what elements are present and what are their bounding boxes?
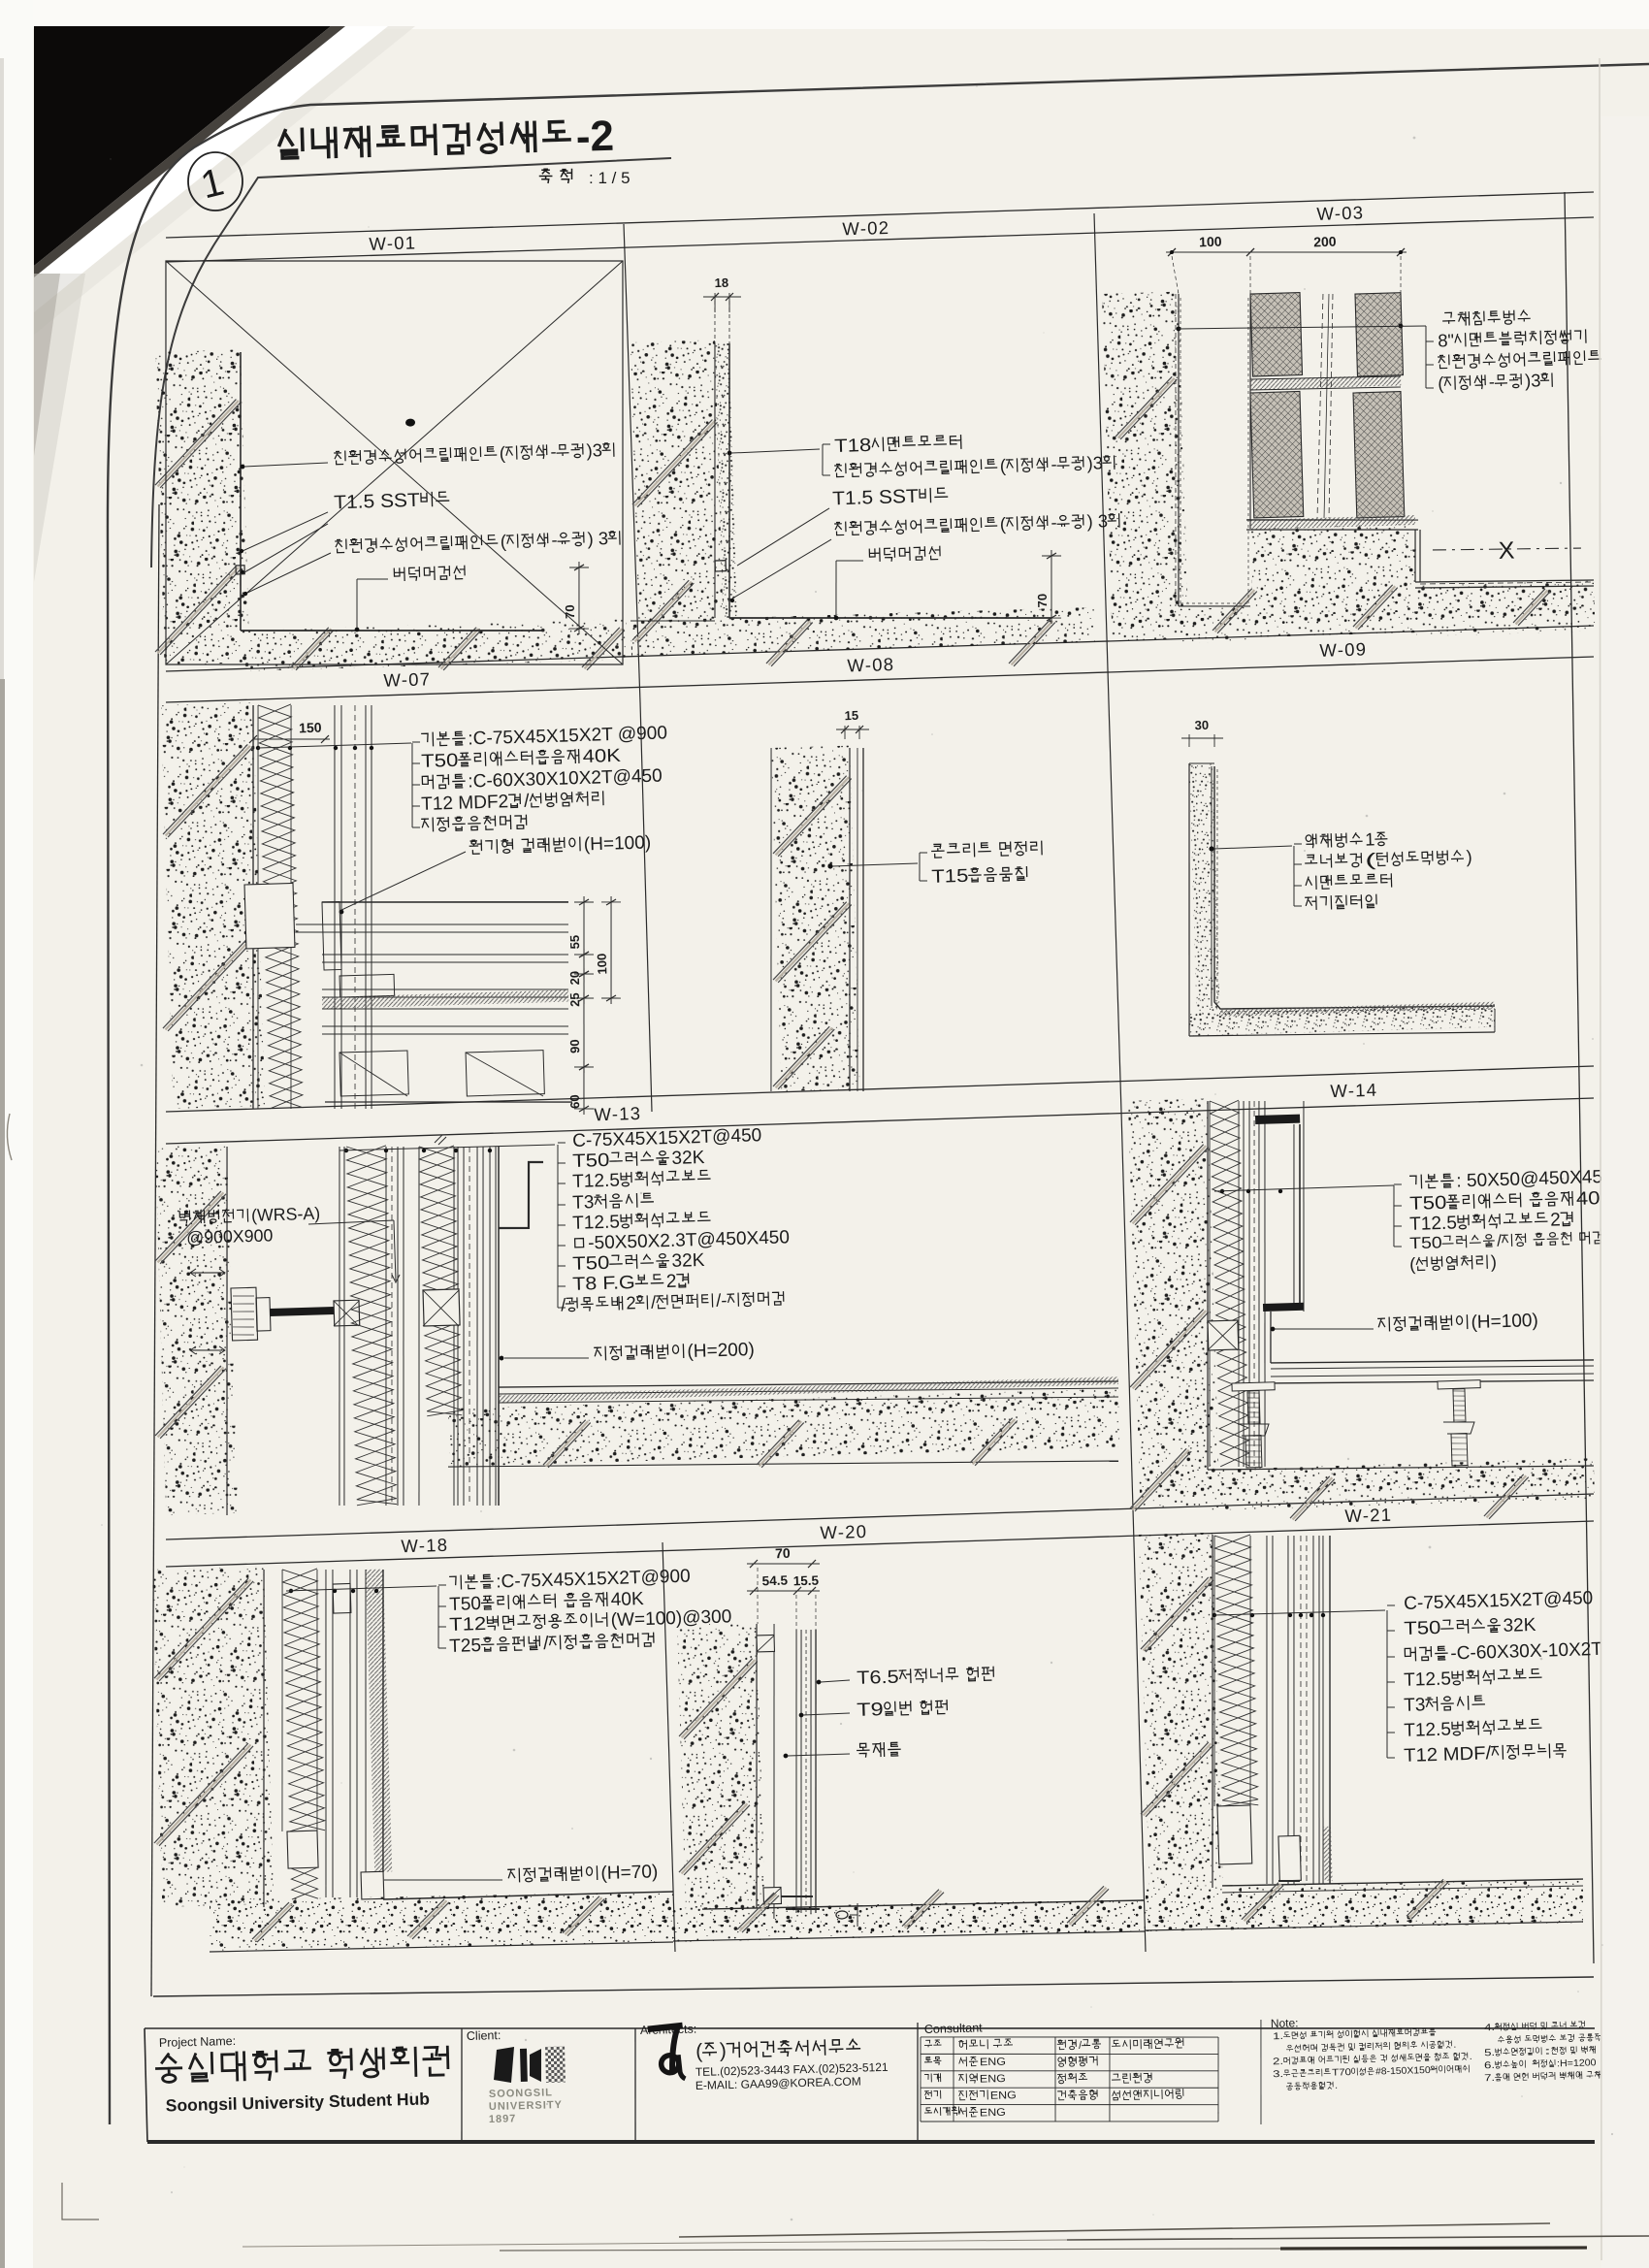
svg-text:(WRS-A): (WRS-A) <box>251 1204 321 1225</box>
svg-text:54.5: 54.5 <box>761 1573 788 1589</box>
svg-text:)3: )3 <box>586 439 602 460</box>
svg-text:W-09: W-09 <box>1319 638 1367 660</box>
svg-text:(H=100): (H=100) <box>584 832 652 855</box>
svg-text:55: 55 <box>567 935 582 950</box>
svg-text:T3: T3 <box>572 1192 595 1214</box>
svg-text:T12 MDF2: T12 MDF2 <box>421 792 509 815</box>
svg-text:W-21: W-21 <box>1344 1505 1392 1526</box>
svg-text:-: - <box>550 441 557 462</box>
svg-text:T8 F.G: T8 F.G <box>572 1273 635 1295</box>
svg-text:200: 200 <box>1313 234 1337 250</box>
svg-text:T6.5: T6.5 <box>857 1668 899 1689</box>
svg-text:.: . <box>1470 2052 1472 2062</box>
svg-text:6.: 6. <box>1484 2060 1495 2071</box>
svg-text:): ) <box>1466 846 1472 866</box>
svg-text::H=1200: :H=1200 <box>1557 2057 1597 2069</box>
svg-text:T50: T50 <box>1404 1618 1441 1639</box>
svg-text:-: - <box>1051 454 1057 474</box>
svg-text:Consultant: Consultant <box>924 2021 984 2036</box>
svg-text:30: 30 <box>1194 718 1209 732</box>
svg-text:70: 70 <box>563 604 577 619</box>
svg-text:.: . <box>1453 2040 1456 2051</box>
svg-text:15.5: 15.5 <box>792 1573 819 1589</box>
svg-text:70: 70 <box>1035 594 1050 608</box>
svg-text:90: 90 <box>567 1039 582 1053</box>
svg-text:7.: 7. <box>1484 2073 1495 2084</box>
svg-text:(H=100): (H=100) <box>1471 1311 1538 1333</box>
svg-text:32K: 32K <box>1503 1615 1536 1636</box>
svg-text:1897: 1897 <box>489 2113 517 2125</box>
svg-text:ENG: ENG <box>980 2057 1006 2069</box>
svg-text:T12.5: T12.5 <box>1404 1669 1451 1690</box>
svg-text:T50: T50 <box>1409 1193 1447 1215</box>
svg-text:@900X900: @900X900 <box>186 1225 274 1247</box>
svg-text:20: 20 <box>567 971 582 986</box>
svg-text:2.: 2. <box>1273 2057 1283 2067</box>
svg-text:/-: /- <box>716 1289 727 1310</box>
svg-text:) 3: ) 3 <box>1086 510 1108 532</box>
svg-text:): ) <box>720 2040 727 2062</box>
svg-text:(H=70): (H=70) <box>600 1862 658 1884</box>
svg-text:W-13: W-13 <box>594 1103 641 1124</box>
svg-text:1.: 1. <box>1273 2031 1283 2042</box>
svg-text:T12.5: T12.5 <box>572 1212 620 1233</box>
svg-text:100: 100 <box>595 954 610 975</box>
svg-text:W-08: W-08 <box>847 654 894 675</box>
svg-text:ENG: ENG <box>990 2090 1017 2102</box>
svg-text:T50: T50 <box>449 1594 481 1615</box>
svg-text:T70: T70 <box>1332 2067 1352 2079</box>
svg-text:UNIVERSITY: UNIVERSITY <box>489 2099 563 2113</box>
svg-text:.: . <box>1335 2081 1338 2091</box>
svg-text:T50: T50 <box>572 1253 610 1275</box>
svg-text:ENG: ENG <box>980 2073 1006 2086</box>
svg-text:) 3: ) 3 <box>587 528 608 549</box>
svg-text:-: - <box>551 530 558 550</box>
svg-text:Project Name:: Project Name: <box>159 2034 237 2050</box>
svg-text:T3: T3 <box>1404 1695 1426 1716</box>
svg-text:(H=200): (H=200) <box>687 1340 755 1362</box>
svg-text:32K: 32K <box>671 1250 705 1272</box>
svg-text:W-02: W-02 <box>842 217 889 239</box>
svg-text:SOONGSIL: SOONGSIL <box>489 2087 553 2100</box>
svg-text:T50: T50 <box>421 751 459 772</box>
svg-text:-2: -2 <box>575 113 615 161</box>
svg-text:W-18: W-18 <box>401 1535 448 1556</box>
svg-text:ENG: ENG <box>980 2107 1006 2120</box>
svg-text:W-03: W-03 <box>1316 202 1364 223</box>
svg-text:Client:: Client: <box>467 2028 501 2043</box>
svg-text::: : <box>1543 2046 1552 2057</box>
svg-text:): ) <box>1491 1251 1498 1272</box>
svg-text:T12 MDF/: T12 MDF/ <box>1404 1743 1492 1766</box>
svg-text:1: 1 <box>1365 828 1375 849</box>
svg-text:W-07: W-07 <box>383 668 431 690</box>
svg-text:-: - <box>1489 372 1496 392</box>
svg-text:2: 2 <box>1550 1210 1561 1230</box>
svg-text:T15: T15 <box>931 866 969 888</box>
svg-text:2: 2 <box>666 1272 677 1292</box>
svg-text:T1.5 SST: T1.5 SST <box>334 490 420 514</box>
svg-text:T12.5: T12.5 <box>1404 1719 1451 1740</box>
svg-text:-: - <box>1051 512 1057 533</box>
svg-text:150: 150 <box>299 720 322 736</box>
svg-text:T50: T50 <box>572 1150 610 1172</box>
svg-text:2: 2 <box>626 1292 636 1312</box>
svg-text:W-20: W-20 <box>820 1521 867 1542</box>
svg-text:(: ( <box>695 2040 703 2062</box>
svg-text:4.: 4. <box>1484 2023 1495 2033</box>
svg-text:100: 100 <box>1199 234 1222 250</box>
svg-text:25: 25 <box>567 992 582 1007</box>
svg-text:5.: 5. <box>1484 2048 1495 2058</box>
svg-text:X: X <box>1498 536 1515 564</box>
svg-text:70: 70 <box>775 1545 791 1561</box>
svg-text:W-14: W-14 <box>1330 1080 1377 1101</box>
svg-text:W-01: W-01 <box>369 232 416 253</box>
svg-text:8": 8" <box>1438 330 1454 350</box>
svg-text:T12.5: T12.5 <box>572 1171 620 1192</box>
svg-text:#8-150X150: #8-150X150 <box>1375 2065 1432 2077</box>
svg-text:T12.5: T12.5 <box>1409 1214 1457 1235</box>
svg-text:T12: T12 <box>449 1614 487 1636</box>
svg-text:60: 60 <box>567 1094 582 1109</box>
svg-text:Note:: Note: <box>1271 2016 1299 2030</box>
svg-text:: 1 / 5: : 1 / 5 <box>589 169 630 187</box>
svg-text:40K: 40K <box>582 746 621 767</box>
svg-text:T25: T25 <box>449 1636 481 1657</box>
svg-text:T1.5 SST: T1.5 SST <box>832 486 919 510</box>
svg-text:T50: T50 <box>1409 1233 1442 1252</box>
svg-text:T18: T18 <box>834 436 872 457</box>
svg-text:)3: )3 <box>1086 452 1103 472</box>
svg-text:/: / <box>1497 1231 1503 1249</box>
svg-text:15: 15 <box>844 708 858 723</box>
svg-text:40K: 40K <box>610 1589 644 1610</box>
svg-text:18: 18 <box>714 275 728 290</box>
svg-text:3.: 3. <box>1273 2069 1283 2080</box>
svg-text:T9: T9 <box>857 1700 884 1721</box>
svg-text:32K: 32K <box>671 1148 705 1169</box>
svg-text:)3: )3 <box>1525 370 1541 390</box>
